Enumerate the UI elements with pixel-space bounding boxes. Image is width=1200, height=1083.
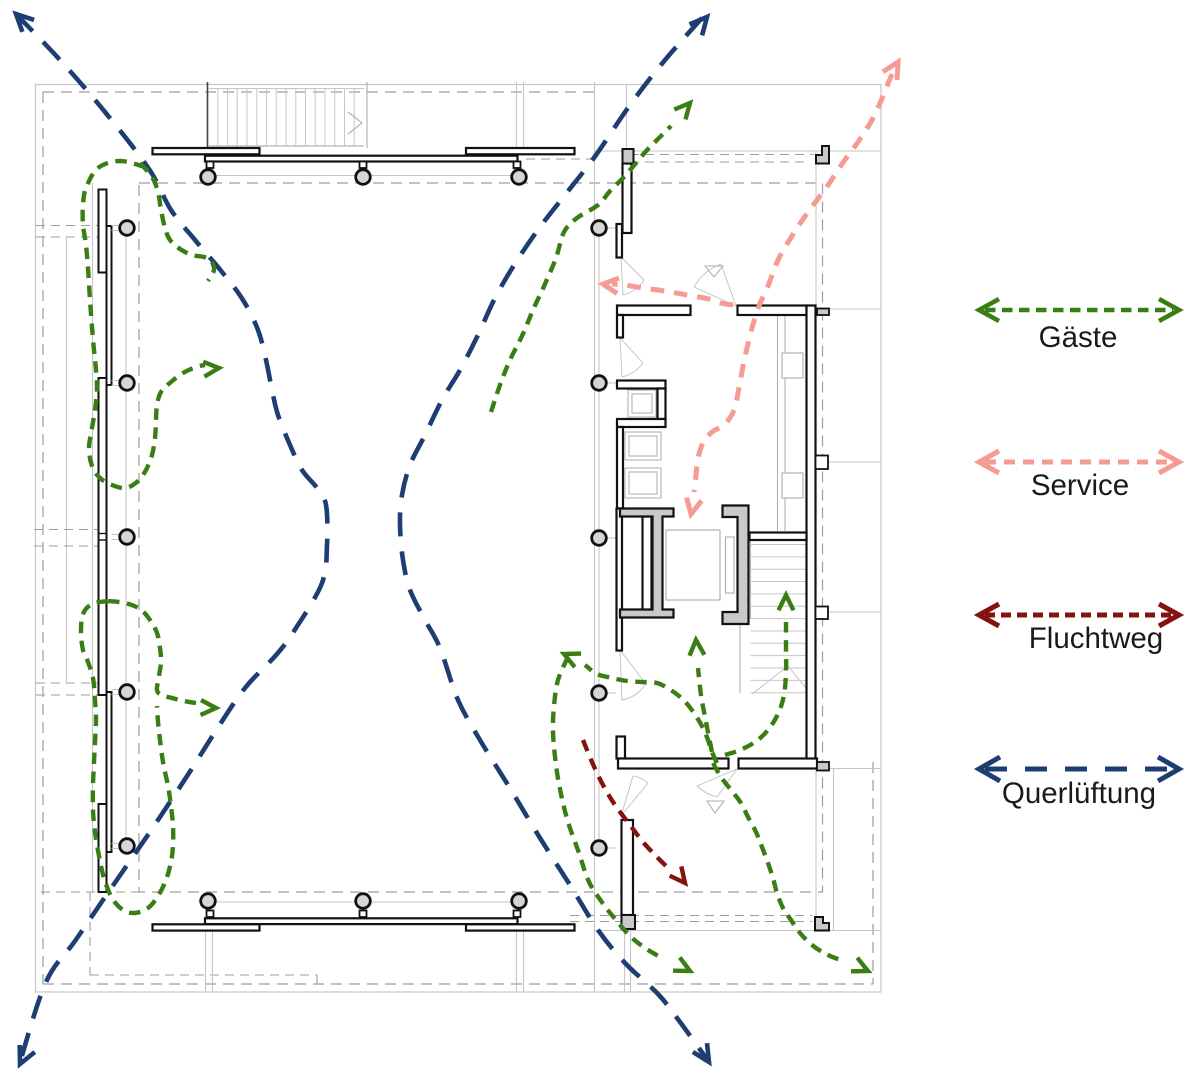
svg-text:Fluchtweg: Fluchtweg bbox=[1029, 622, 1163, 655]
svg-text:Gäste: Gäste bbox=[1039, 321, 1118, 354]
svg-text:Querlüftung: Querlüftung bbox=[1002, 777, 1156, 810]
svg-text:Service: Service bbox=[1031, 469, 1129, 502]
